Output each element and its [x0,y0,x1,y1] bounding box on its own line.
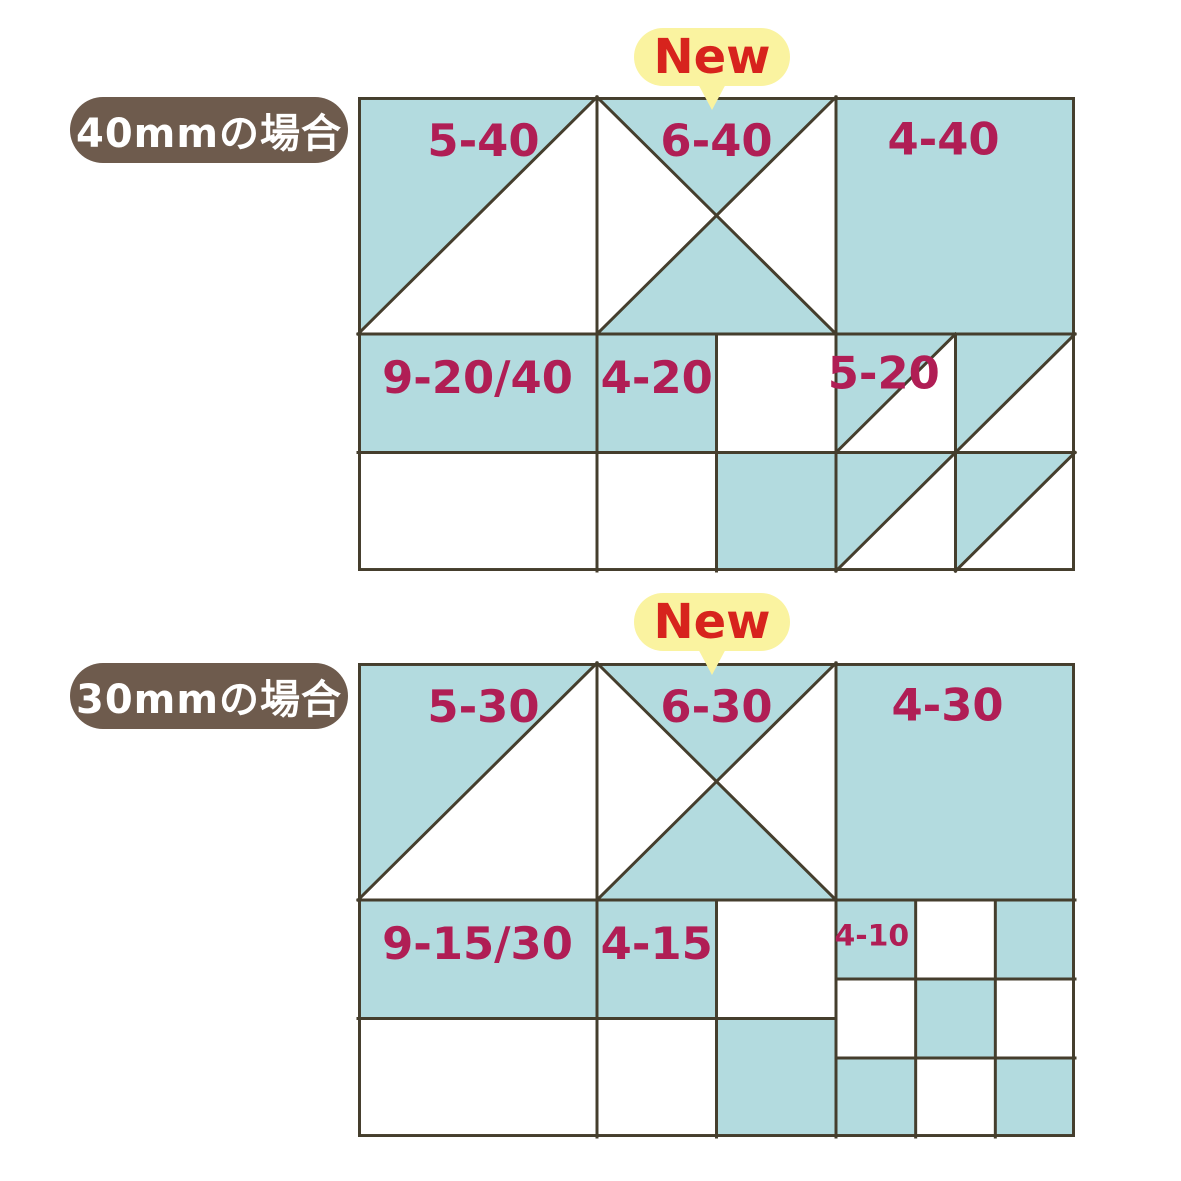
small-square-teal [717,1019,837,1138]
label-square-large: 4-30 [891,679,1003,731]
badge-tail-down-icon [696,645,728,675]
size-pill-40mm: 40mmの場合 [70,97,348,163]
label-square-large: 4-40 [887,113,999,165]
new-badge-30mm-text: New [653,594,770,650]
checkerboard-teal-cell [836,1058,916,1137]
label-hourglass: 6-30 [660,681,772,733]
new-badge-30mm: New [634,593,790,651]
quilt-grid-40mm: 5-40 6-40 4-40 9-20/40 4-20 5-20 [358,97,1075,571]
label-rect-wide: 9-20/40 [382,352,573,404]
quilt-grid-30mm: 5-30 6-30 4-30 9-15/30 4-15 4-10 [358,663,1075,1137]
label-hst-large: 5-40 [427,115,539,167]
checkerboard-teal-cell [995,1058,1075,1137]
size-pill-40mm-label: 40mmの場合 [76,101,342,159]
new-badge-40mm: New [634,28,790,86]
badge-tail-down-icon [696,80,728,110]
label-square-small: 4-15 [601,918,713,970]
size-pill-30mm-label: 30mmの場合 [76,667,342,725]
small-square-teal [717,453,837,572]
page: 40mmの場合 New [0,0,1181,1181]
checkerboard-teal-cell [916,979,996,1058]
label-hourglass: 6-40 [660,115,772,167]
label-hst-small: 5-20 [828,347,940,399]
label-square-small: 4-20 [601,352,713,404]
label-checkerboard: 4-10 [834,919,909,954]
label-hst-large: 5-30 [427,681,539,733]
checkerboard-teal-cell [995,900,1075,979]
new-badge-40mm-text: New [653,29,770,85]
size-pill-30mm: 30mmの場合 [70,663,348,729]
label-rect-wide: 9-15/30 [382,918,573,970]
